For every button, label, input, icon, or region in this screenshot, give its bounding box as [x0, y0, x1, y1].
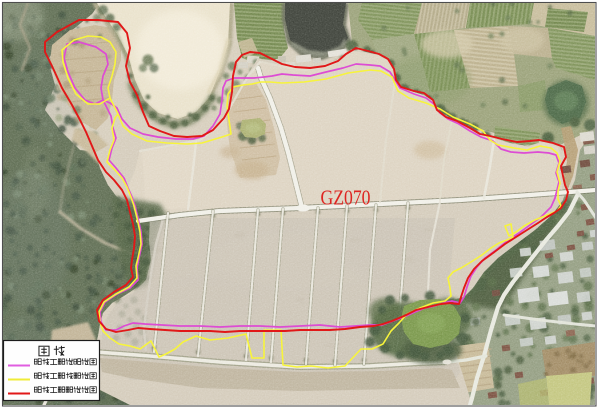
svg-text:GZ070: GZ070	[321, 186, 371, 210]
